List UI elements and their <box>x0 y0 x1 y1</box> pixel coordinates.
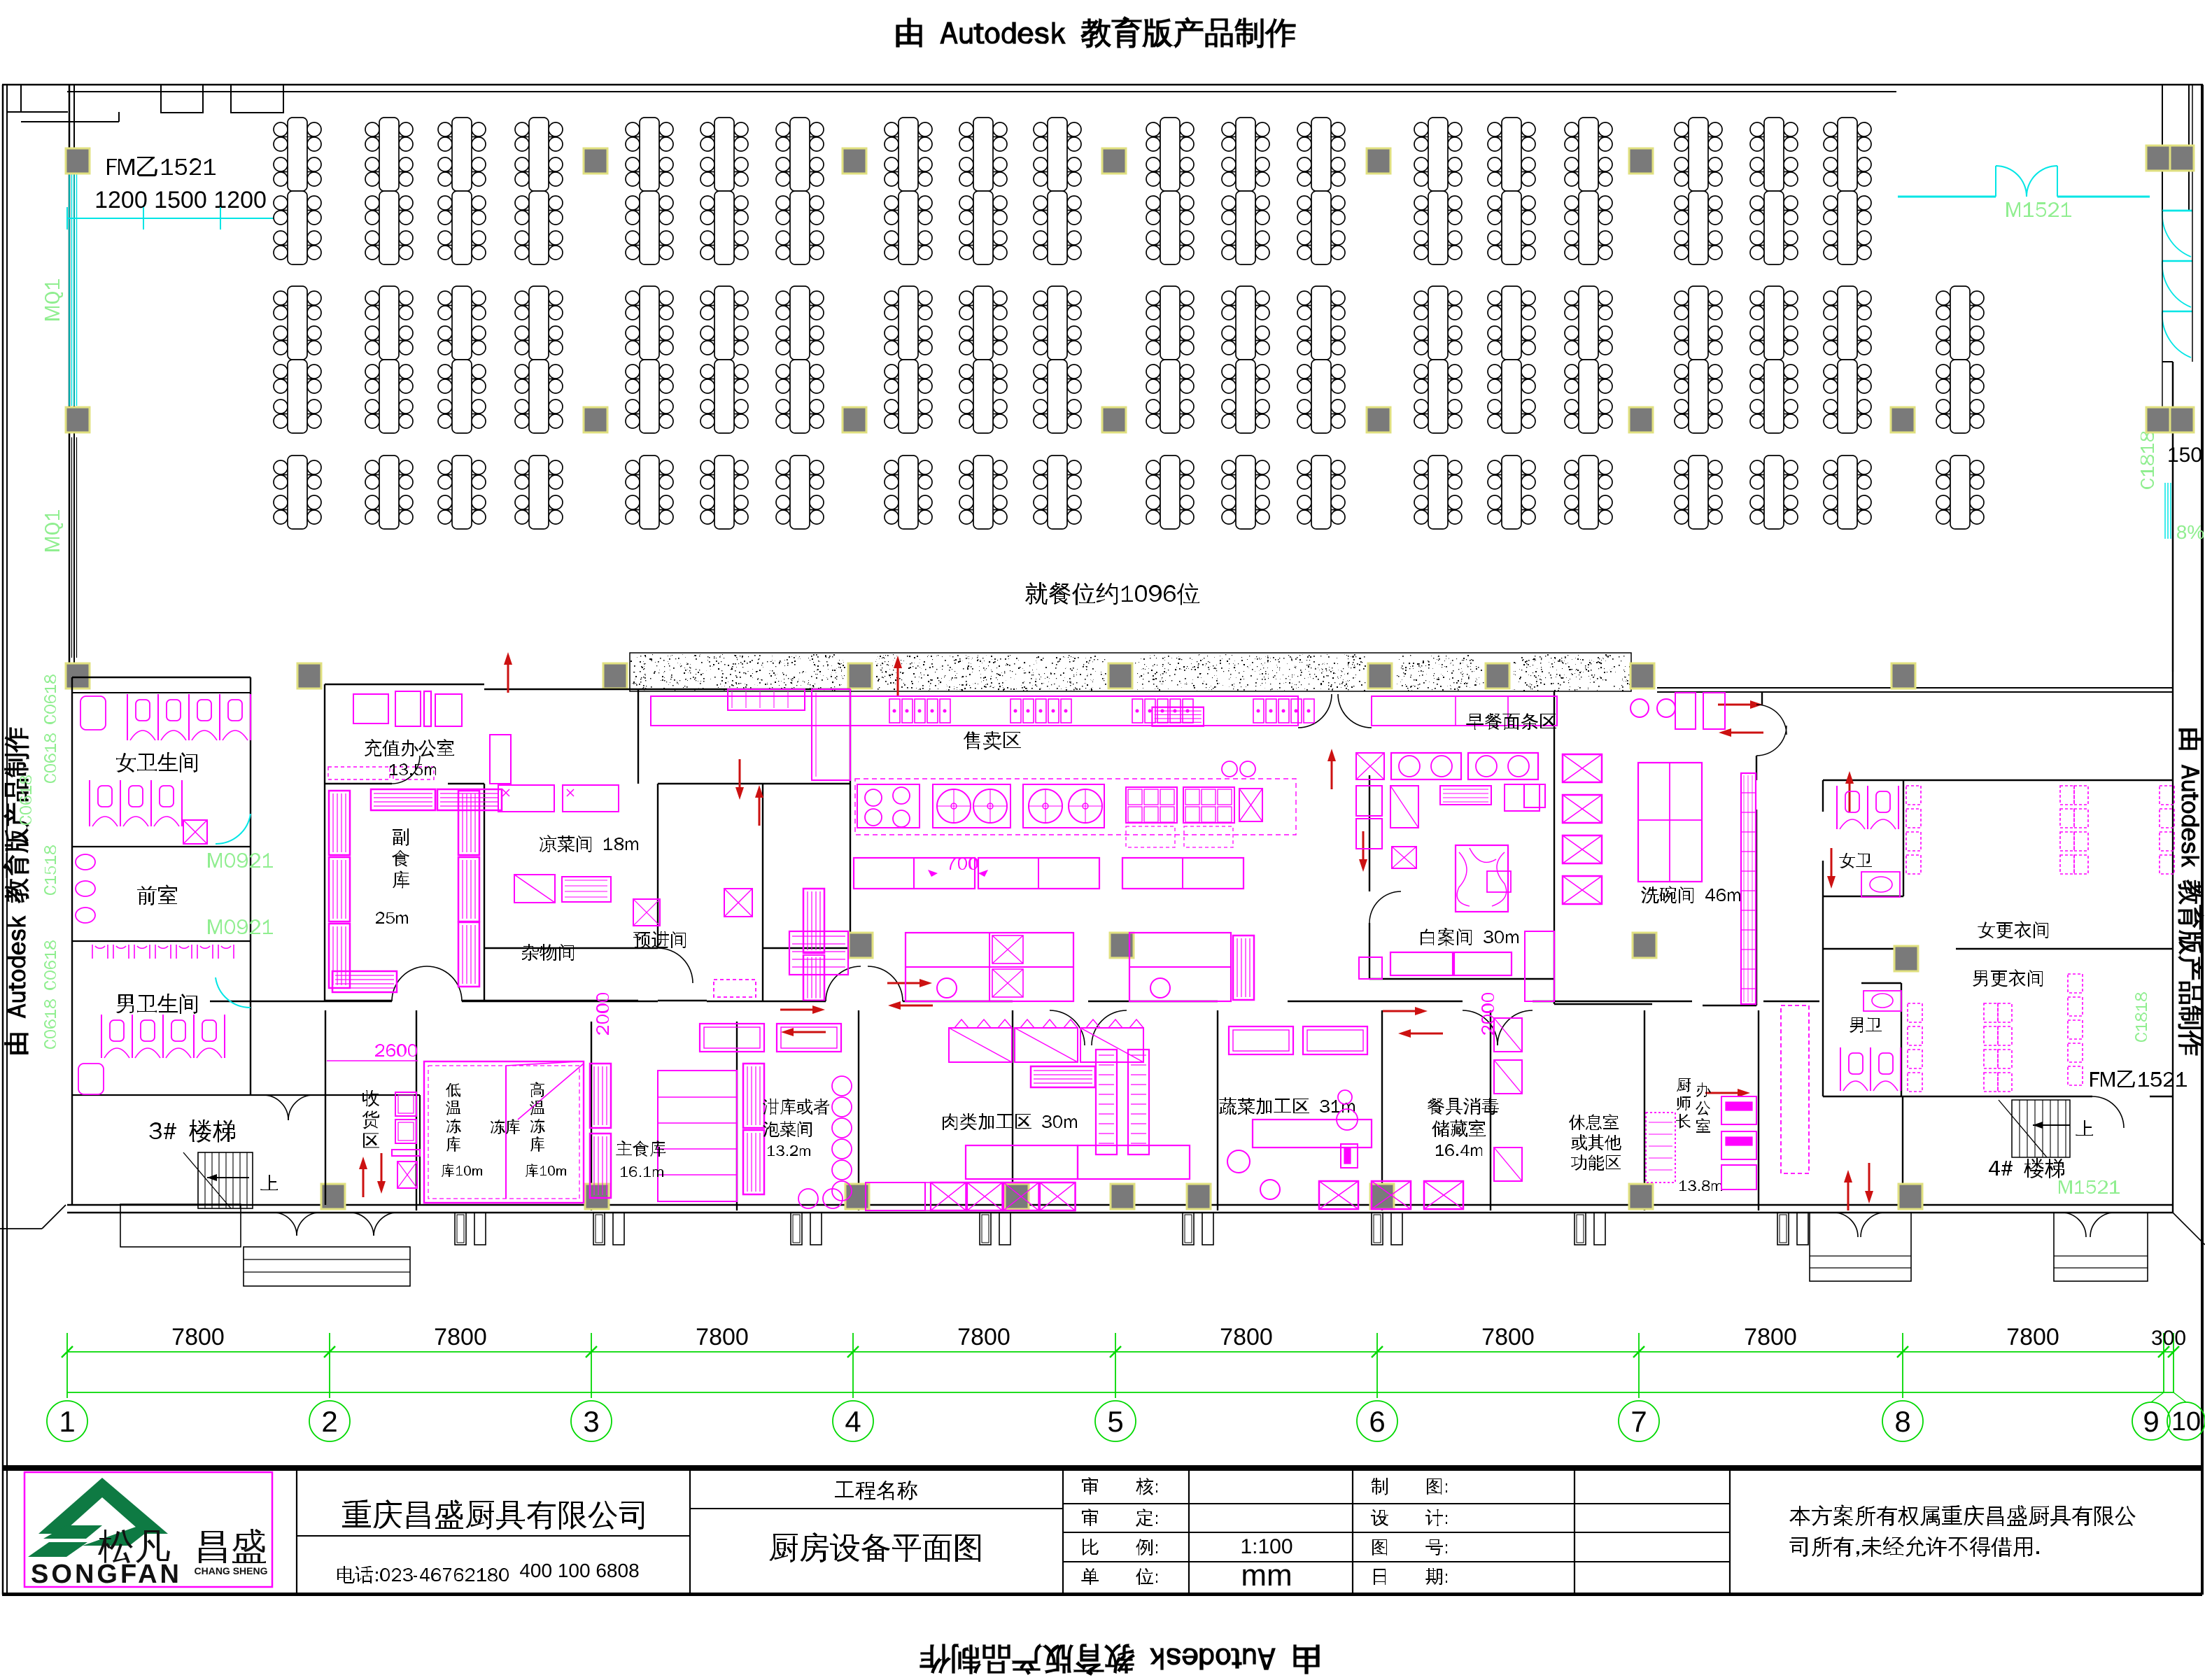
svg-text:4: 4 <box>845 1405 861 1438</box>
svg-text:10: 10 <box>2171 1407 2201 1437</box>
svg-text:1:100: 1:100 <box>1240 1535 1292 1558</box>
svg-text:1200 1500 1200: 1200 1500 1200 <box>94 187 267 213</box>
svg-text:8%: 8% <box>2176 521 2204 543</box>
svg-text:7800: 7800 <box>957 1324 1010 1350</box>
svg-text:300: 300 <box>2151 1327 2186 1350</box>
svg-text:7800: 7800 <box>171 1324 225 1350</box>
svg-text:CHANG SHENG: CHANG SHENG <box>194 1565 267 1576</box>
svg-text:7800: 7800 <box>1481 1324 1535 1350</box>
svg-text:7800: 7800 <box>696 1324 749 1350</box>
svg-text:7: 7 <box>1630 1405 1647 1438</box>
svg-text:7800: 7800 <box>2006 1324 2059 1350</box>
svg-text:7800: 7800 <box>434 1324 487 1350</box>
svg-text:150: 150 <box>2167 444 2202 467</box>
svg-text:6: 6 <box>1369 1405 1385 1438</box>
svg-text:mm: mm <box>1241 1558 1292 1593</box>
svg-text:400 100 6808: 400 100 6808 <box>519 1560 639 1581</box>
svg-text:3: 3 <box>583 1405 599 1438</box>
svg-text:2: 2 <box>321 1405 337 1438</box>
svg-text:1: 1 <box>59 1405 75 1438</box>
svg-text:8: 8 <box>1894 1405 1910 1438</box>
svg-text:7800: 7800 <box>1220 1324 1273 1350</box>
svg-text:5: 5 <box>1107 1405 1123 1438</box>
svg-text:7800: 7800 <box>1744 1324 1797 1350</box>
svg-text:SONGFAN: SONGFAN <box>31 1560 182 1589</box>
svg-text:9: 9 <box>2143 1405 2159 1438</box>
